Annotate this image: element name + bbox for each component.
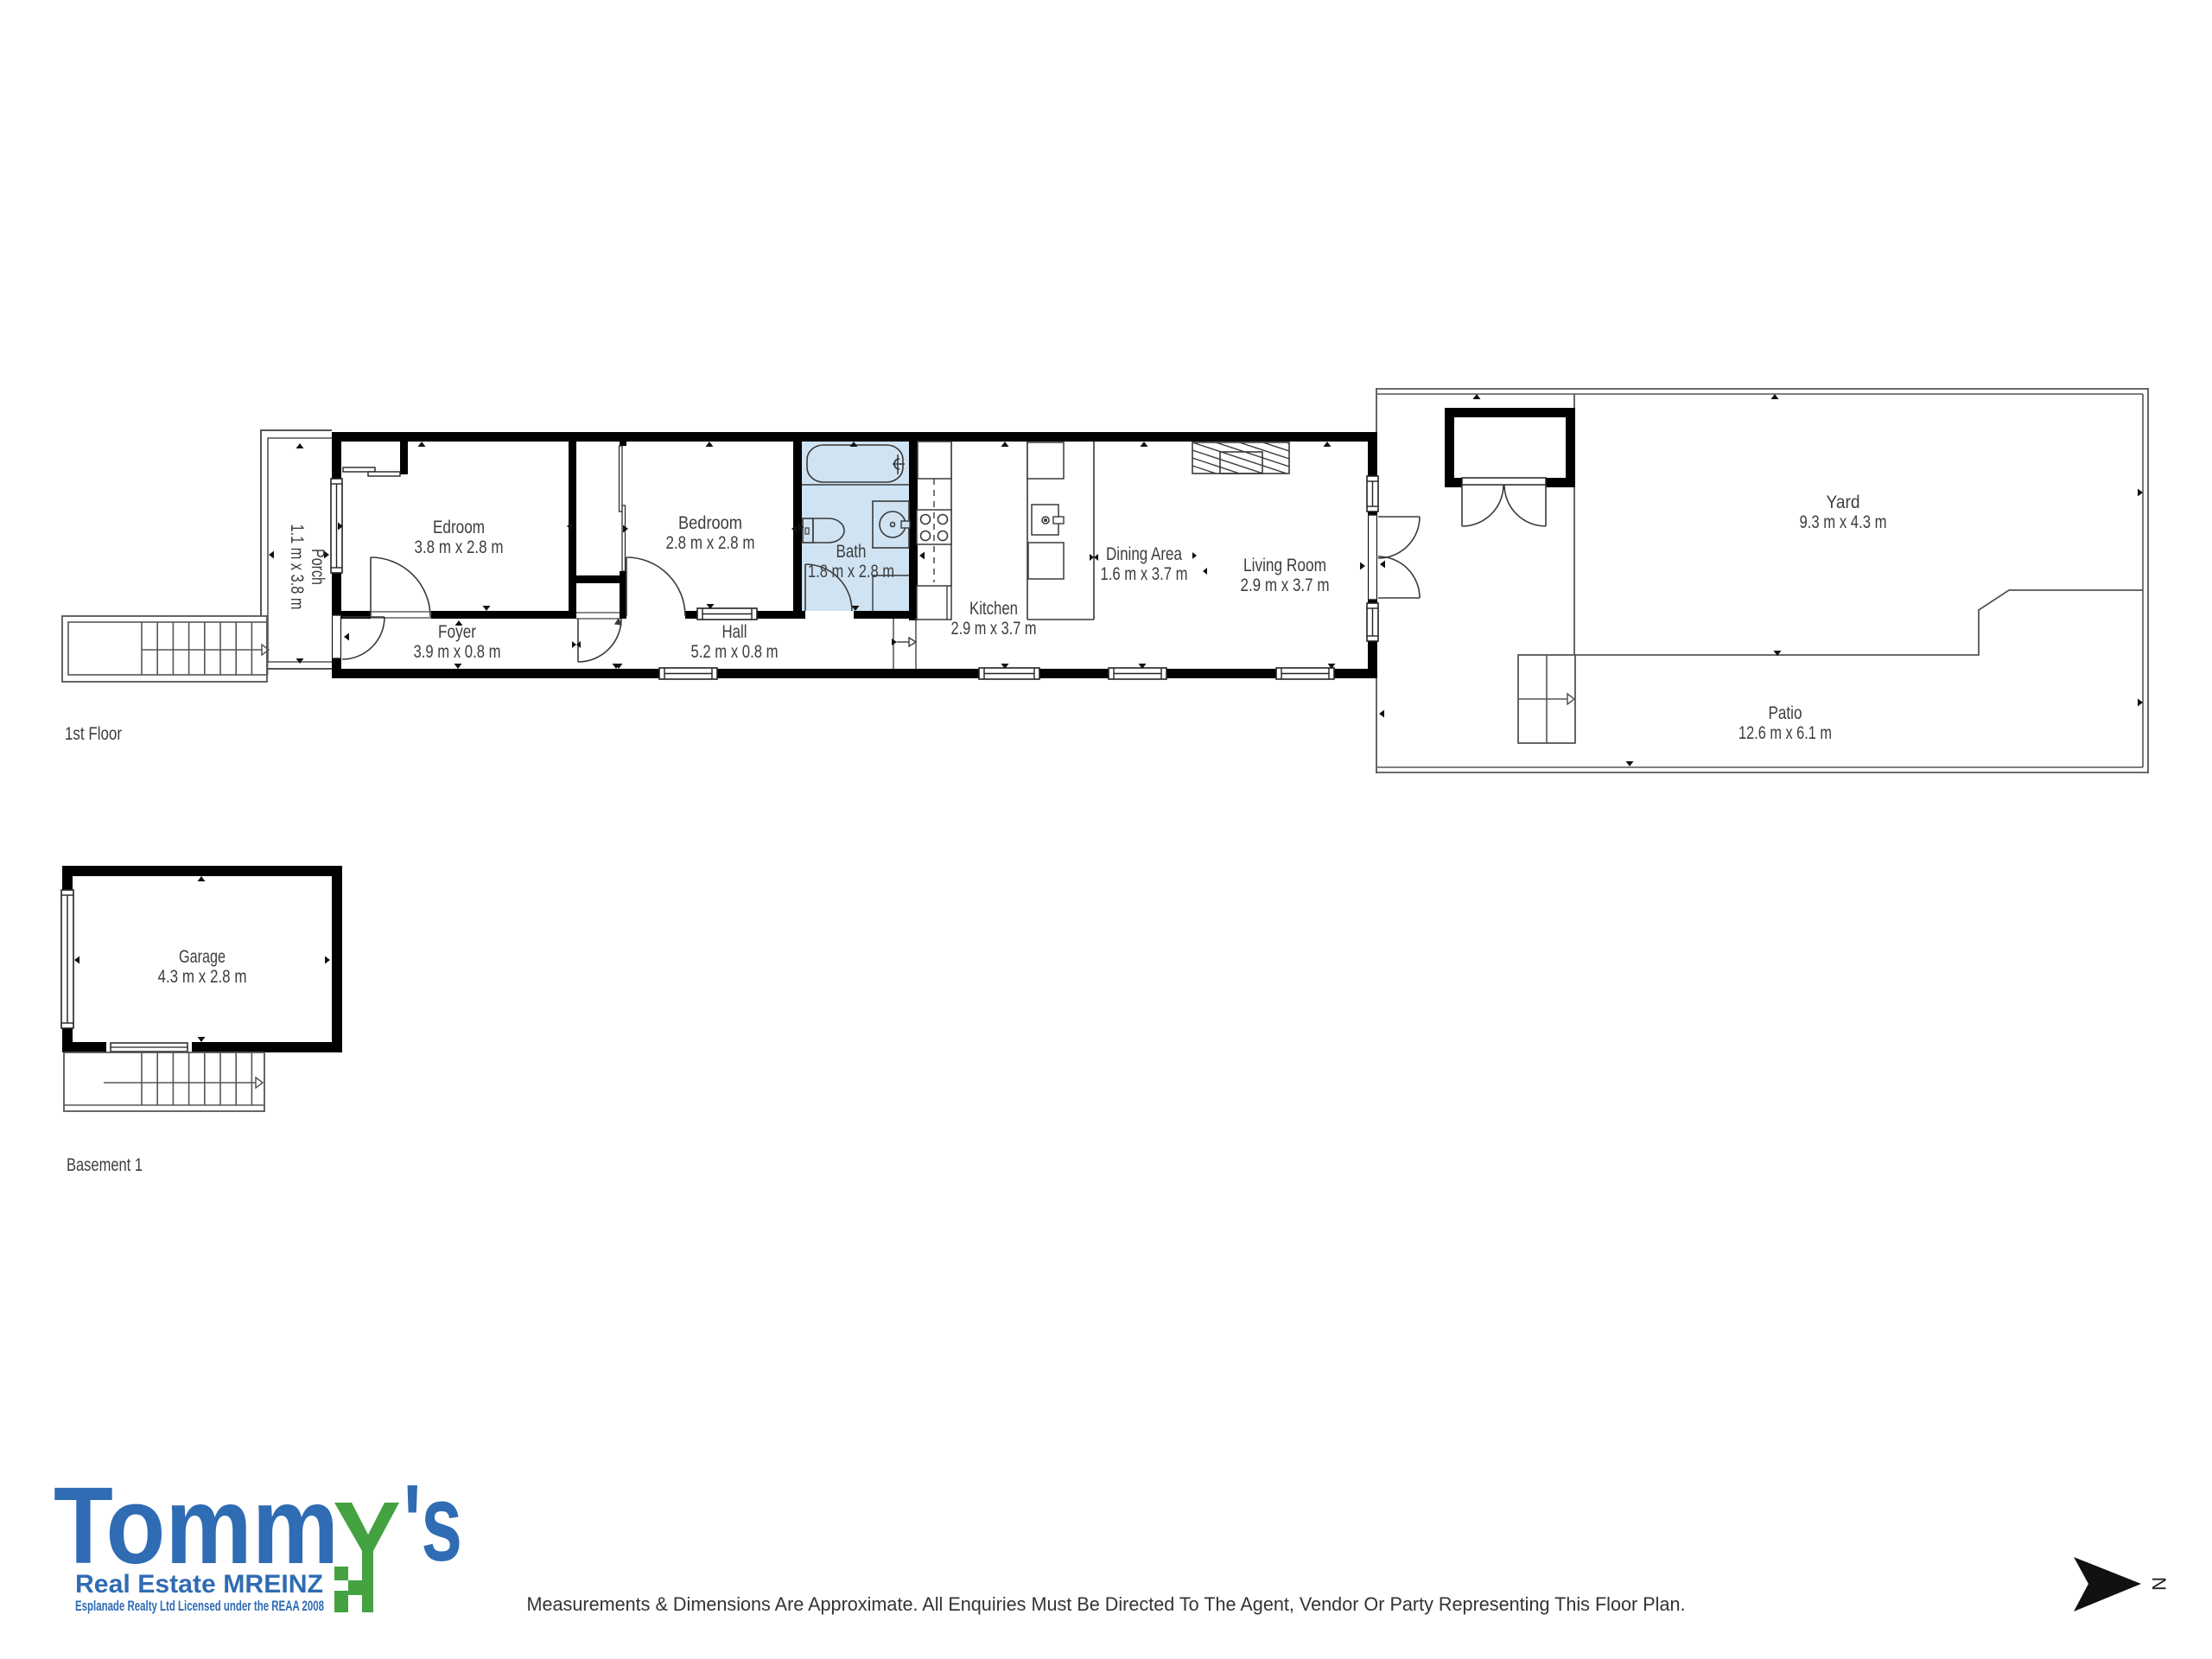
svg-text:N: N xyxy=(2148,1577,2170,1591)
svg-text:Hall: Hall xyxy=(722,622,747,642)
svg-text:1.8 m x 2.8 m: 1.8 m x 2.8 m xyxy=(808,562,894,582)
svg-text:Living Room: Living Room xyxy=(1243,556,1326,575)
svg-text:5.2 m x 0.8 m: 5.2 m x 0.8 m xyxy=(691,642,779,662)
svg-text:Esplanade Realty Ltd Licensed: Esplanade Realty Ltd Licensed under the … xyxy=(75,1599,324,1614)
svg-text:Garage: Garage xyxy=(179,947,226,967)
svg-text:Bedroom: Bedroom xyxy=(678,513,742,533)
svg-text:4.3 m x 2.8 m: 4.3 m x 2.8 m xyxy=(158,967,247,987)
svg-text:2.9 m x 3.7 m: 2.9 m x 3.7 m xyxy=(1241,575,1330,595)
svg-text:3.9 m x 0.8 m: 3.9 m x 0.8 m xyxy=(414,642,501,662)
svg-text:Real Estate MREINZ: Real Estate MREINZ xyxy=(75,1570,323,1599)
svg-text:2.8 m x 2.8 m: 2.8 m x 2.8 m xyxy=(666,533,755,553)
svg-text:9.3 m x 4.3 m: 9.3 m x 4.3 m xyxy=(1800,512,1887,532)
svg-text:3.8 m x 2.8 m: 3.8 m x 2.8 m xyxy=(415,537,504,557)
svg-text:1.1 m x 3.8 m: 1.1 m x 3.8 m xyxy=(287,524,307,610)
svg-text:Kitchen: Kitchen xyxy=(969,599,1018,619)
svg-text:Tomm: Tomm xyxy=(54,1465,339,1586)
svg-text:2.9 m x 3.7 m: 2.9 m x 3.7 m xyxy=(951,619,1037,639)
svg-text:12.6 m x 6.1 m: 12.6 m x 6.1 m xyxy=(1738,723,1832,743)
svg-text:'s: 's xyxy=(404,1462,462,1584)
svg-text:1.6 m x 3.7 m: 1.6 m x 3.7 m xyxy=(1101,564,1188,584)
svg-text:Edroom: Edroom xyxy=(433,518,485,537)
svg-text:Foyer: Foyer xyxy=(438,622,476,642)
svg-text:Patio: Patio xyxy=(1769,703,1802,723)
svg-text:Dining Area: Dining Area xyxy=(1106,544,1182,564)
svg-text:Porch: Porch xyxy=(308,549,327,585)
svg-text:Yard: Yard xyxy=(1827,493,1860,512)
svg-text:Basement 1: Basement 1 xyxy=(67,1155,143,1175)
svg-text:1st Floor: 1st Floor xyxy=(65,724,122,744)
svg-text:Measurements & Dimensions Are: Measurements & Dimensions Are Approximat… xyxy=(527,1593,1686,1615)
svg-text:Bath: Bath xyxy=(836,542,867,562)
